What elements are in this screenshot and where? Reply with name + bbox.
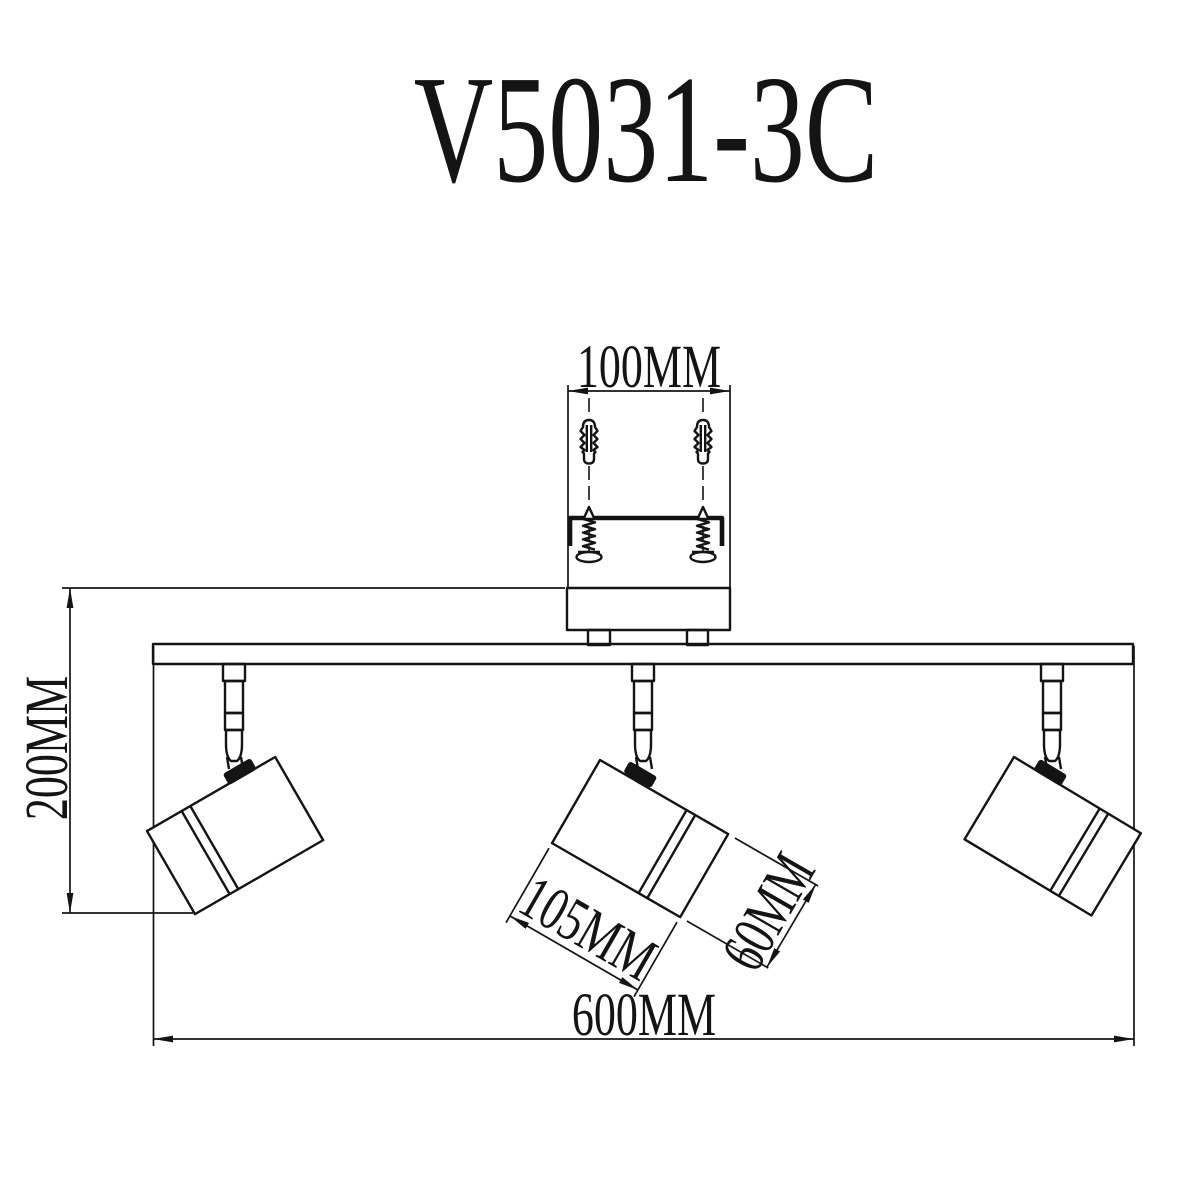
arrowhead xyxy=(67,893,74,913)
spotlight-arm-center xyxy=(632,664,654,769)
arrowhead xyxy=(67,588,74,608)
technical-drawing-page: V5031-3C 100MM xyxy=(0,0,1200,1200)
fixture-diagram: V5031-3C 100MM xyxy=(0,0,1200,1200)
height-label: 200MM xyxy=(12,676,81,820)
mounting-screws xyxy=(577,507,716,562)
screw-icon xyxy=(577,507,602,562)
arrowhead xyxy=(1114,1036,1134,1043)
page-title: V5031-3C xyxy=(414,44,878,214)
canopy-body xyxy=(567,588,730,630)
canopy xyxy=(567,588,730,645)
width-label: 600MM xyxy=(572,980,716,1049)
screw-icon xyxy=(691,507,716,562)
canopy-foot xyxy=(588,630,610,645)
head-diameter-label: 60MM xyxy=(708,841,829,981)
spotlight-arm-left xyxy=(223,664,245,769)
wall-anchors xyxy=(581,398,712,552)
title-block: V5031-3C xyxy=(414,44,878,214)
wall-anchor-icon xyxy=(695,420,712,464)
canopy-foot xyxy=(687,630,708,645)
wall-anchor-icon xyxy=(581,420,598,464)
dimension-height: 200MM xyxy=(12,588,565,913)
hole-spacing-label: 100MM xyxy=(577,332,721,401)
arrowhead xyxy=(153,1036,173,1043)
spotlight-arm-right xyxy=(1041,664,1063,769)
track-bar xyxy=(153,644,1133,664)
